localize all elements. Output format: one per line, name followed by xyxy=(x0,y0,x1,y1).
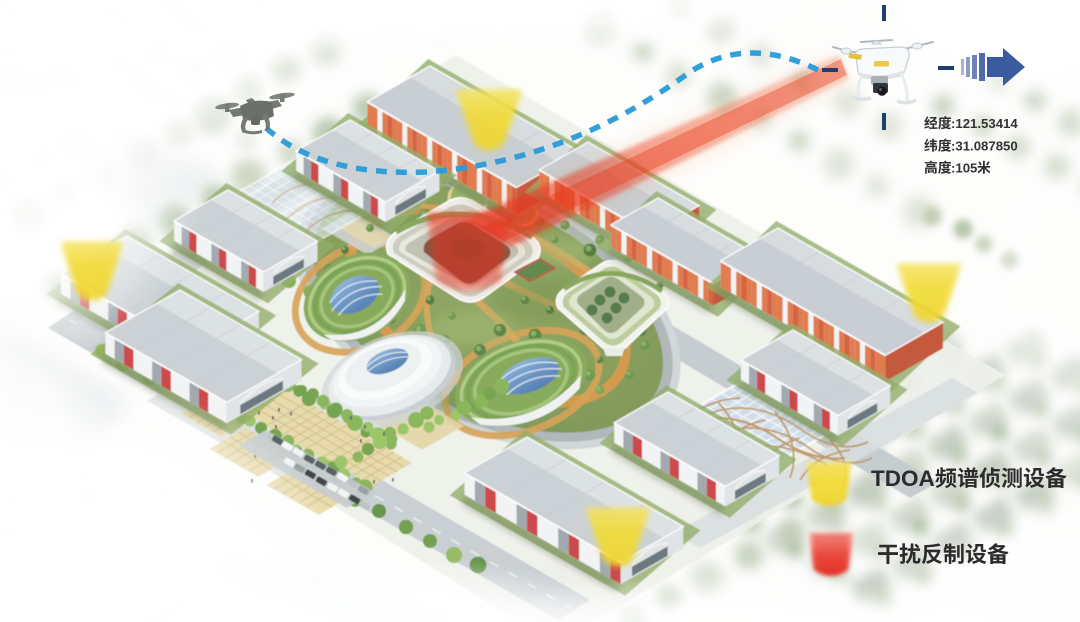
svg-text::31.087850: :31.087850 xyxy=(951,139,1018,154)
svg-text::105: :105 xyxy=(951,161,977,176)
svg-text::121.53414: :121.53414 xyxy=(951,116,1018,131)
svg-text:TDOA: TDOA xyxy=(871,466,935,491)
